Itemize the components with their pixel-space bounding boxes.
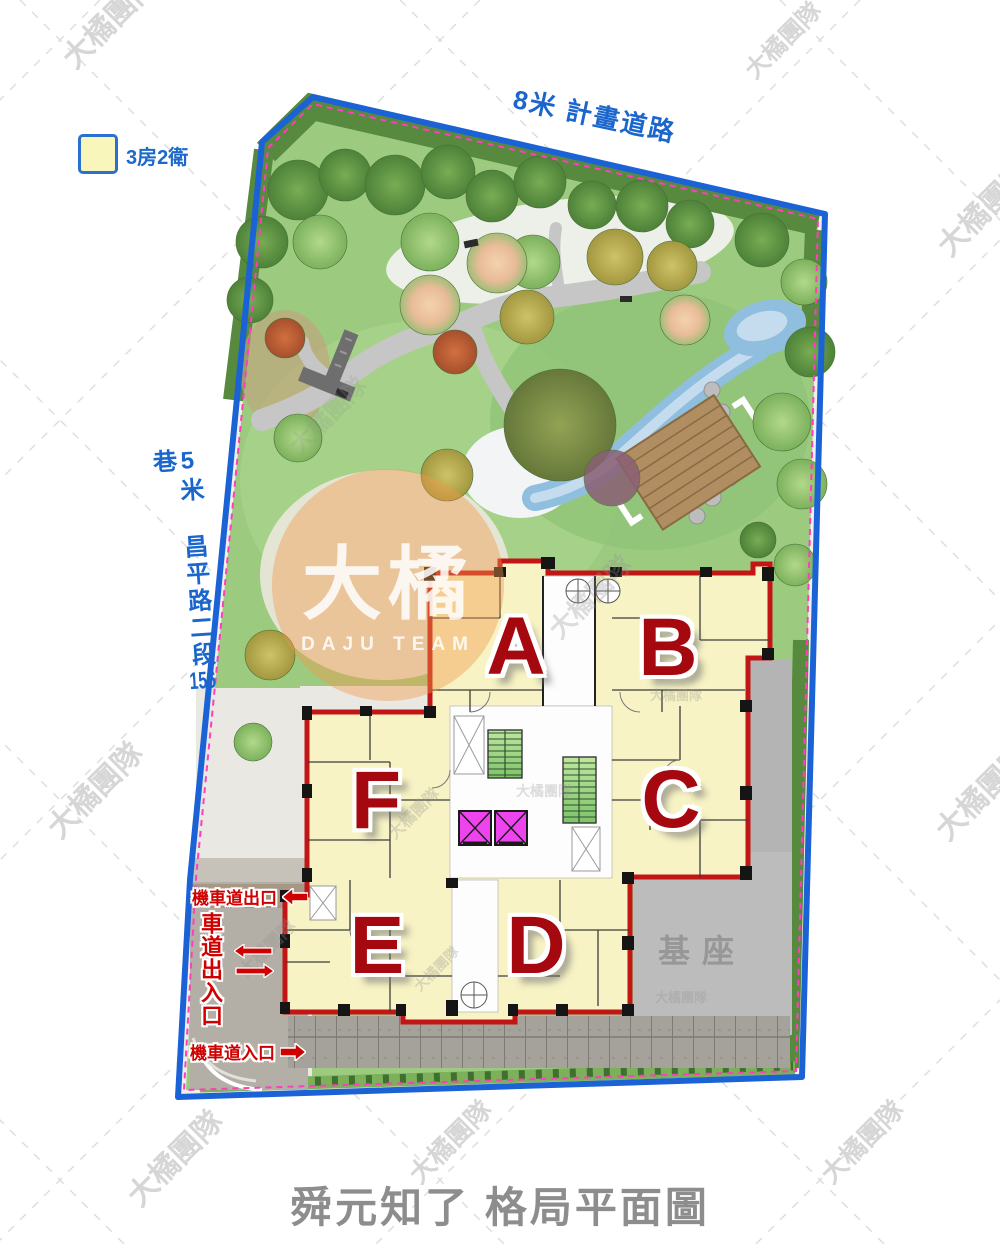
road-left-part: 巷 <box>148 448 177 477</box>
watermark-text: 大橘團隊 <box>655 990 708 1005</box>
driveway-band <box>190 858 308 882</box>
left-arrow-icon <box>282 888 308 906</box>
moto-exit-label: 機車道出口 <box>192 884 308 909</box>
watermark-text: 大橘團隊 <box>57 0 165 75</box>
watermark-text: 大橘團隊 <box>932 155 1000 263</box>
watermark-text: 大橘團隊 <box>739 0 827 84</box>
watermark-text: 大橘團隊 <box>516 783 573 799</box>
brand-watermark-name: 大橘 <box>302 540 474 629</box>
legend-label: 3房2衛 <box>126 141 188 170</box>
watermark-text: 大橘團隊 <box>42 737 150 845</box>
unit-label-a: A <box>486 600 545 694</box>
brand-watermark: 大橘 DAJU TEAM <box>272 469 504 701</box>
road-left-number: 156 <box>188 668 217 694</box>
parking-strip <box>288 1016 790 1068</box>
podium-label: 基座 <box>658 926 746 972</box>
moto-entry-text: 機車道入口 <box>190 1039 275 1064</box>
unit-label-d: D <box>506 899 565 993</box>
unit-label-e: E <box>350 899 405 993</box>
unit-label-b: B <box>638 601 697 695</box>
unit-label-f: F <box>351 754 401 848</box>
watermark-text: 大橘團隊 <box>930 739 1000 847</box>
two-way-arrows-icon <box>234 944 274 978</box>
moto-entry-label: 機車道入口 <box>190 1039 306 1064</box>
site-plan-page: 大橘團隊 大橘團隊 大橘團隊 大橘團隊 大橘團隊 大橘團隊 大橘團隊 大橘團隊 <box>0 0 1000 1250</box>
legend-swatch-3b2b <box>78 134 118 174</box>
driveway-label: 車道出入口 <box>199 912 221 1027</box>
moto-exit-text: 機車道出口 <box>192 884 277 909</box>
brand-watermark-team: DAJU TEAM <box>301 634 475 655</box>
page-title: 舜元知了 格局平面圖 <box>0 1174 1000 1235</box>
podium-strip <box>748 660 792 852</box>
unit-label-c: C <box>641 753 700 847</box>
right-arrow-icon <box>280 1043 306 1061</box>
